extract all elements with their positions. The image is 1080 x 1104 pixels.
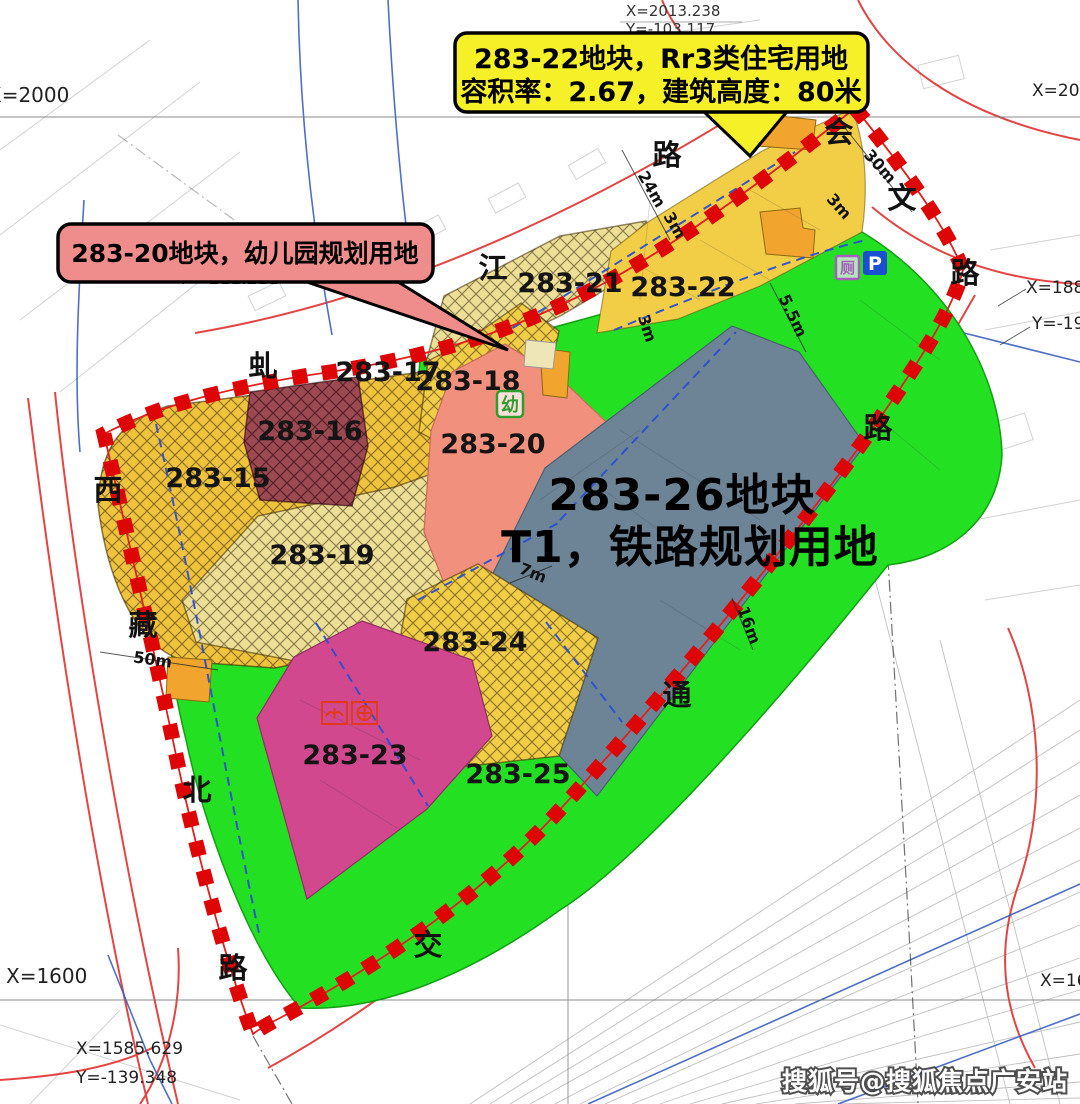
parcel-label-283-15: 283-15 [165,463,270,494]
watermark: 搜狐号@搜狐焦点广安站 [782,1067,1068,1096]
coordinate-label: X=2000 [0,83,69,107]
road-char: 通 [662,678,691,712]
callout-283-22-line1: 283-22地块，Rr3类住宅用地 [474,43,848,75]
callout-283-20-text: 283-20地块，幼儿园规划用地 [71,239,418,268]
planning-map-page: 虬 江 路 西 藏 北 路 会 文 路 交 通 路 24m 3m 30m 3m … [0,0,1080,1104]
center-annotation-line1: 283-26地块 [548,470,815,521]
parcel-label-283-19: 283-19 [269,540,374,571]
parcel-label-283-20: 283-20 [440,429,545,460]
road-char: 路 [218,951,248,985]
road-char: 路 [950,256,980,290]
parcel-label-283-25: 283-25 [465,759,570,790]
callout-283-22-line2: 容积率：2.67，建筑高度：80米 [460,76,861,108]
parcel-label-283-16: 283-16 [257,416,362,447]
parcel-label-283-21: 283-21 [517,268,622,299]
svg-text:幼: 幼 [501,394,519,416]
center-annotation-line2: T1，铁路规划用地 [501,522,879,573]
dimension-label: 24m [634,168,670,211]
road-char: 会 [824,115,853,149]
coordinate-label: Y=-192. [1031,314,1080,334]
coordinate-label: X=1888. [1026,278,1080,298]
dimension-label: 50m [132,647,173,671]
parcel-label-283-22: 283-22 [630,272,735,303]
building-pale [524,340,556,369]
road-char: 交 [413,928,442,962]
svg-text:P: P [868,253,882,275]
coordinate-label: X=1585.629 [76,1039,183,1059]
coordinate-label: X=1600 [1040,971,1080,991]
road-char: 虬 [248,349,277,383]
kindergarten-icon: 幼 [497,391,523,417]
road-char: 西 [93,473,122,507]
road-char: 江 [478,251,507,285]
road-char: 路 [863,411,893,445]
road-char: 路 [652,138,682,172]
road-char: 文 [887,181,917,215]
parcel-label-283-23: 283-23 [302,740,407,771]
coordinate-label: X=1600 [6,964,87,988]
coordinate-label: X=2000 [1032,81,1080,101]
coordinate-label: X=2013.238 [626,2,720,20]
toilet-icon: 厕 [836,256,859,279]
road-char: 北 [182,773,211,807]
svg-text:厕: 厕 [840,259,855,277]
planning-map: 虬 江 路 西 藏 北 路 会 文 路 交 通 路 24m 3m 30m 3m … [0,0,1080,1104]
coordinate-label: Y=-139.348 [75,1068,177,1088]
parking-icon: P [863,251,887,275]
parcel-label-283-24: 283-24 [422,627,527,658]
road-char: 藏 [128,608,157,642]
